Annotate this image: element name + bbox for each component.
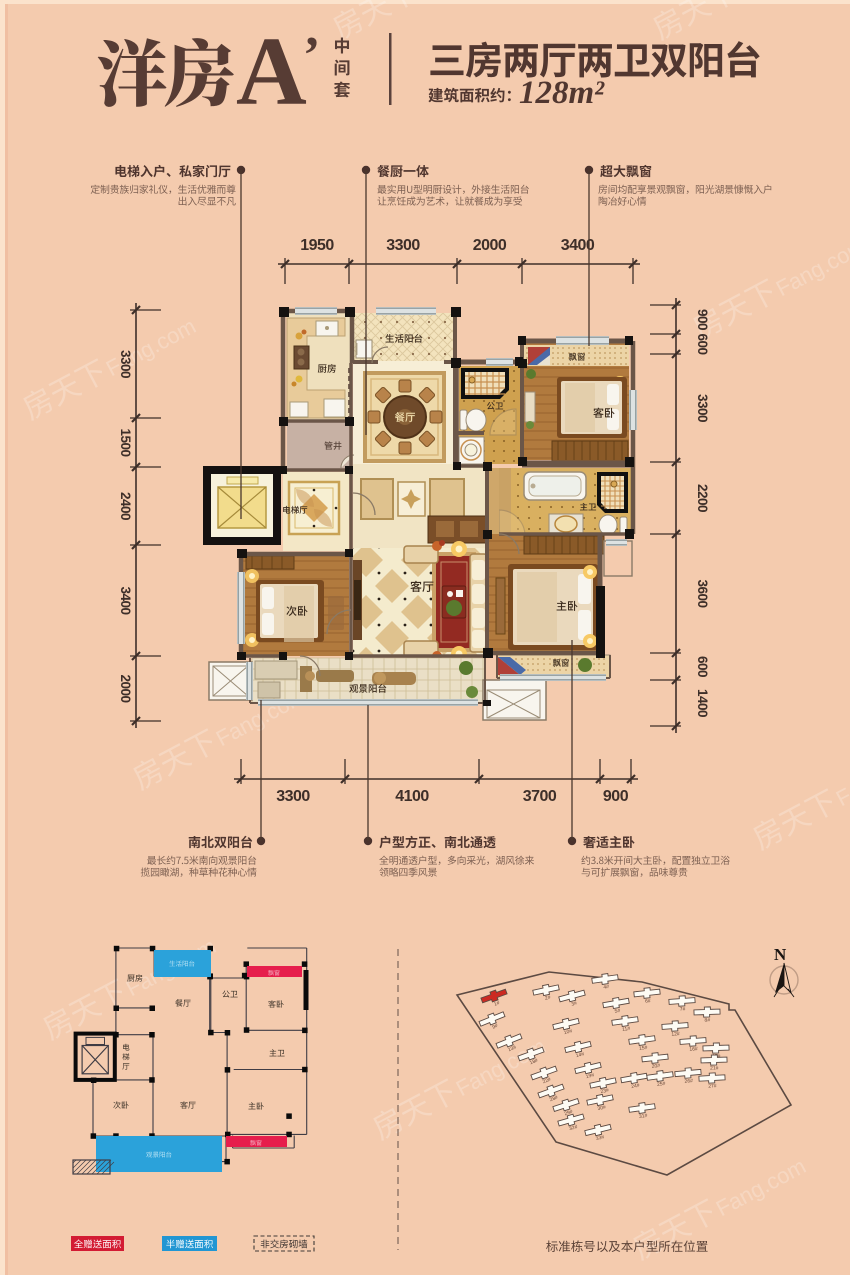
svg-text:3300: 3300 [386,237,420,254]
svg-text:3300: 3300 [695,394,710,422]
svg-text:12#: 12# [671,1031,680,1038]
svg-text:3300: 3300 [118,350,133,378]
svg-text:900: 900 [603,788,629,805]
svg-text:1500: 1500 [118,428,133,456]
svg-text:21#: 21# [710,1065,719,1071]
svg-text:15#: 15# [639,1045,648,1052]
svg-text:16#: 16# [689,1046,698,1053]
svg-text:2400: 2400 [118,492,133,520]
svg-text:8#: 8# [704,1017,710,1023]
svg-text:3700: 3700 [523,788,557,805]
svg-text:4#: 4# [603,984,610,991]
svg-text:2000: 2000 [473,237,507,254]
svg-text:1400: 1400 [695,689,710,717]
svg-text:2000: 2000 [118,674,133,702]
svg-text:3400: 3400 [118,586,133,614]
svg-text:7#: 7# [680,1006,686,1012]
svg-text:31#: 31# [639,1113,648,1120]
svg-text:26#: 26# [684,1078,693,1085]
svg-text:2200: 2200 [695,484,710,512]
svg-text:20#: 20# [651,1063,660,1070]
svg-text:3600: 3600 [695,579,710,607]
svg-text:N: N [774,945,787,964]
svg-text:900: 900 [695,309,710,330]
svg-text:1950: 1950 [300,237,334,254]
svg-text:25#: 25# [657,1081,666,1088]
svg-text:3400: 3400 [561,237,595,254]
svg-text:27#: 27# [708,1083,717,1089]
svg-text:11#: 11# [622,1026,631,1033]
svg-text:’: ’ [303,27,320,84]
svg-text:600: 600 [695,656,710,677]
svg-text:128m²: 128m² [519,75,605,111]
svg-text:6#: 6# [645,998,651,1005]
svg-text:600: 600 [695,333,710,354]
svg-text:4100: 4100 [395,788,429,805]
svg-text:3300: 3300 [276,788,310,805]
svg-text:A: A [236,18,307,126]
